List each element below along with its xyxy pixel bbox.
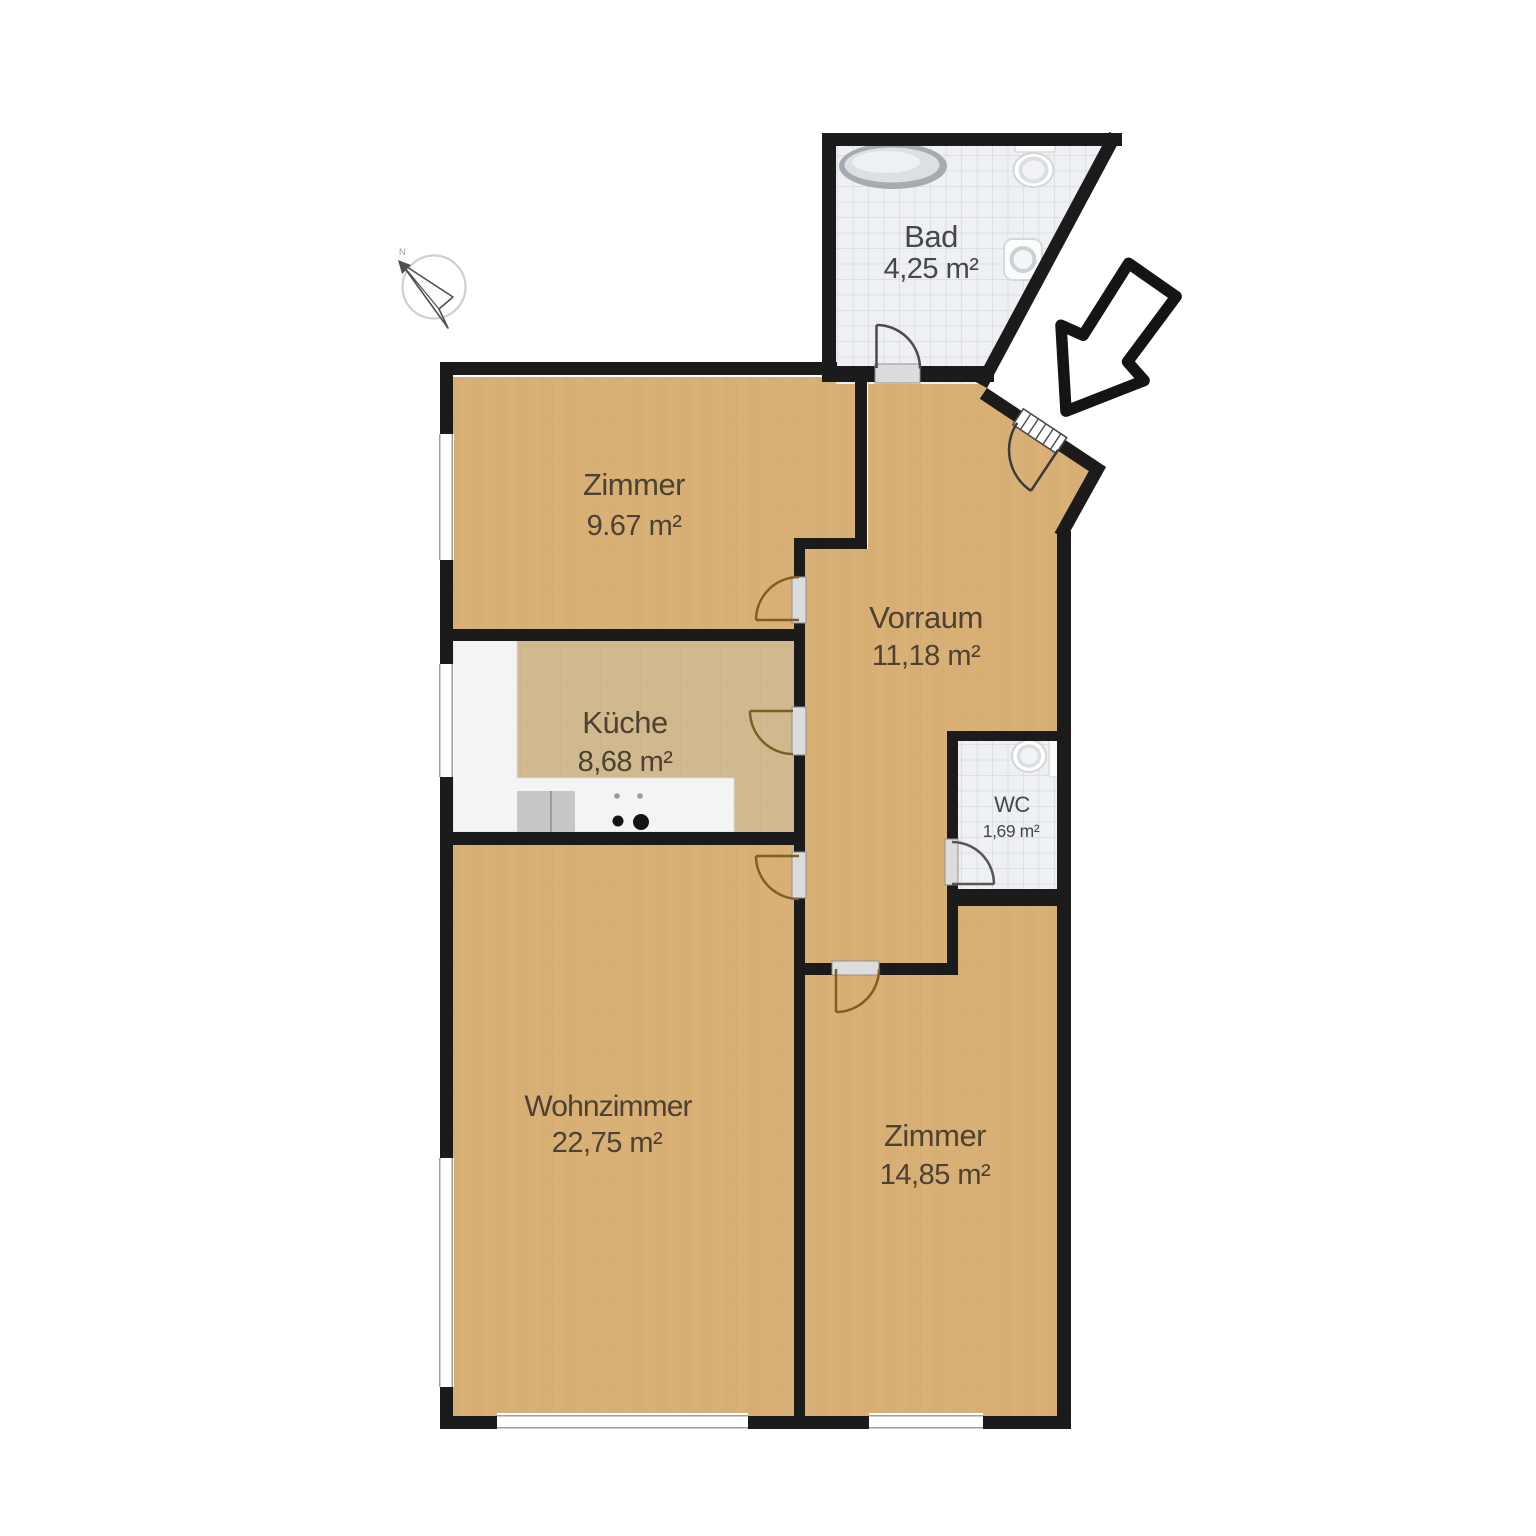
svg-text:22,75 m²: 22,75 m² [552,1127,663,1159]
svg-text:Vorraum: Vorraum [869,600,983,635]
svg-text:Küche: Küche [582,705,667,740]
svg-text:14,85 m²: 14,85 m² [880,1159,991,1191]
svg-text:4,25 m²: 4,25 m² [884,253,980,285]
svg-text:Bad: Bad [904,219,958,254]
svg-text:Zimmer: Zimmer [583,467,685,502]
svg-text:WC: WC [994,792,1030,817]
svg-text:1,69 m²: 1,69 m² [983,821,1040,841]
svg-text:N: N [399,247,406,257]
svg-text:Zimmer: Zimmer [884,1118,986,1153]
svg-text:8,68 m²: 8,68 m² [578,746,674,778]
svg-text:Wohnzimmer: Wohnzimmer [524,1090,692,1123]
svg-text:11,18 m²: 11,18 m² [872,640,981,672]
svg-text:9.67 m²: 9.67 m² [587,510,683,542]
